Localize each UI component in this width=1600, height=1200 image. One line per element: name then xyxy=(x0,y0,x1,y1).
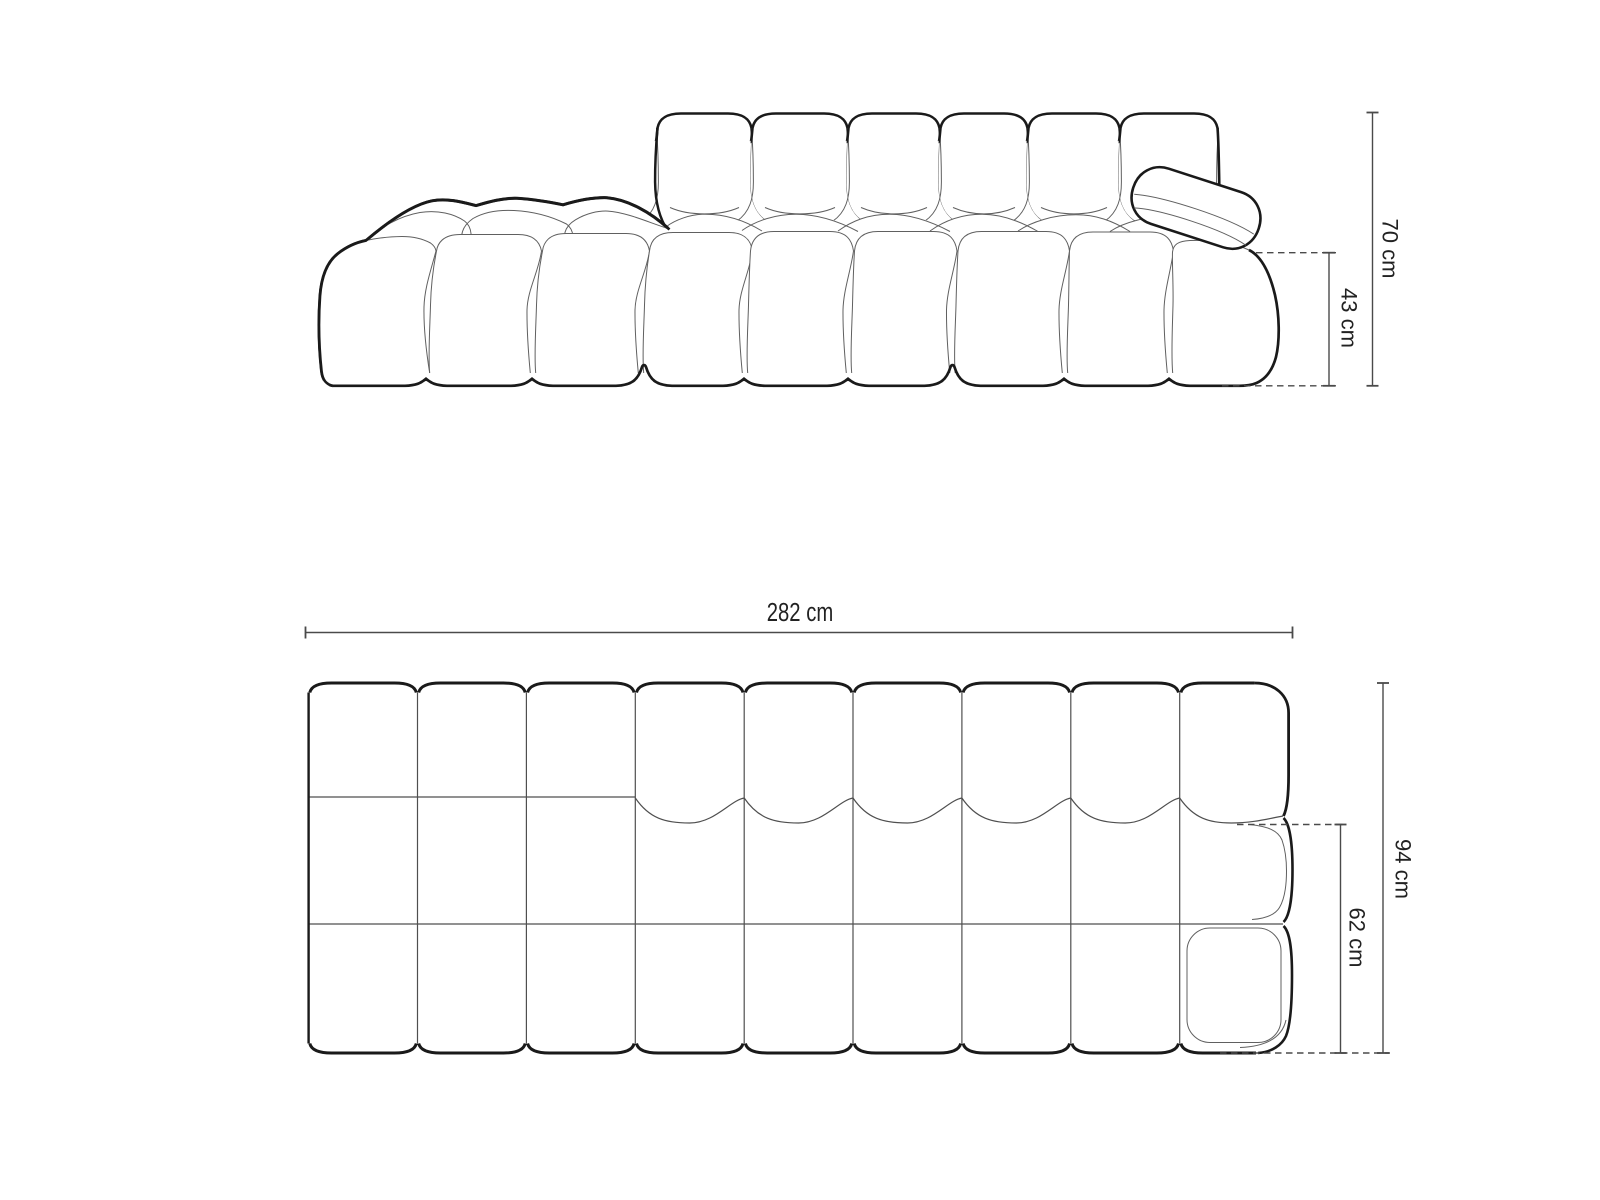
svg-text:43 cm: 43 cm xyxy=(1337,288,1362,348)
svg-text:94 cm: 94 cm xyxy=(1391,839,1416,899)
svg-text:62 cm: 62 cm xyxy=(1345,908,1370,968)
svg-text:282 cm: 282 cm xyxy=(767,598,833,627)
svg-text:70 cm: 70 cm xyxy=(1378,219,1403,279)
